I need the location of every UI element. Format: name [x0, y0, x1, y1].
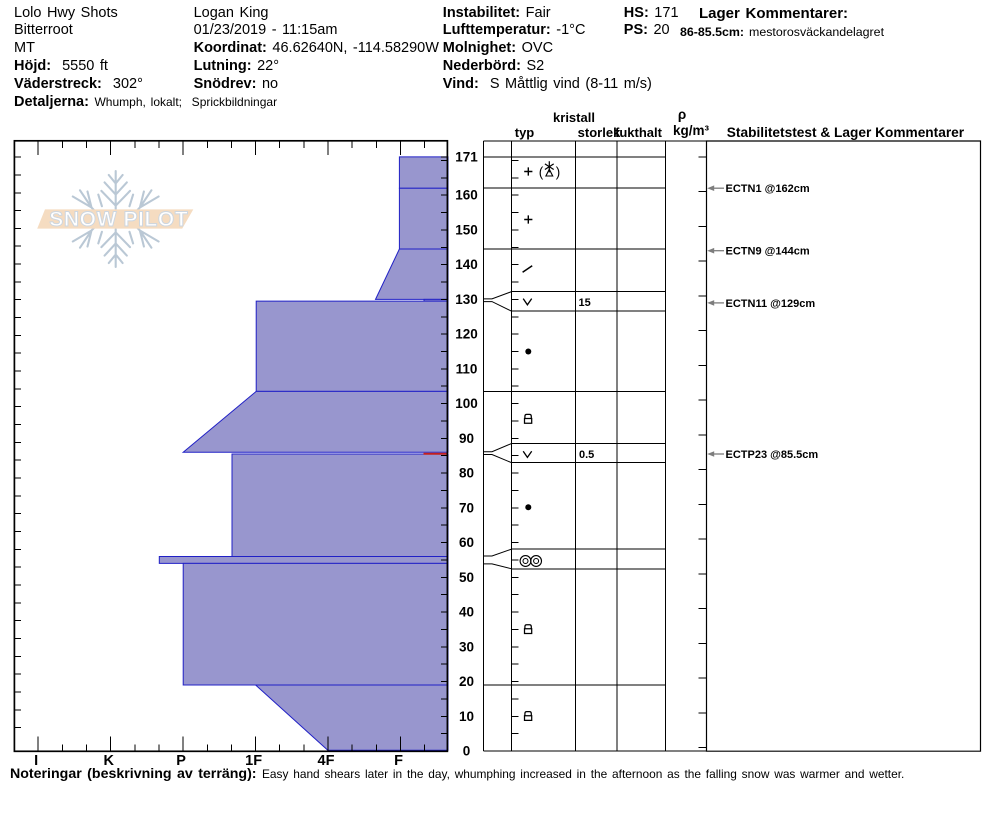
- svg-text:120: 120: [455, 327, 478, 342]
- svg-text:150: 150: [455, 222, 478, 237]
- svg-text:kristall: kristall: [553, 110, 595, 125]
- svg-text:80: 80: [459, 466, 474, 481]
- svg-text:140: 140: [455, 257, 478, 272]
- svg-text:SNOW PILOT: SNOW PILOT: [49, 208, 188, 231]
- svg-text:160: 160: [455, 188, 478, 203]
- svg-text:fukthalt: fukthalt: [615, 125, 663, 140]
- svg-text:ECTN11 @129cm: ECTN11 @129cm: [726, 298, 816, 310]
- svg-text:130: 130: [455, 292, 478, 307]
- svg-text:10: 10: [459, 709, 474, 724]
- svg-text:171: 171: [455, 149, 478, 164]
- svg-text:70: 70: [459, 500, 474, 515]
- svg-text:0.5: 0.5: [579, 449, 594, 461]
- svg-text:ECTN9 @144cm: ECTN9 @144cm: [726, 246, 810, 258]
- svg-text:): ): [556, 165, 561, 180]
- svg-text:kg/m³: kg/m³: [673, 123, 710, 138]
- svg-text:30: 30: [459, 639, 474, 654]
- svg-text:110: 110: [456, 361, 478, 376]
- svg-text:0: 0: [463, 744, 471, 759]
- svg-text:(: (: [539, 165, 544, 180]
- svg-text:ECTP23 @85.5cm: ECTP23 @85.5cm: [726, 449, 819, 461]
- svg-text:40: 40: [459, 605, 474, 620]
- svg-text:60: 60: [459, 535, 474, 550]
- svg-text:typ: typ: [515, 125, 535, 140]
- svg-text:ρ: ρ: [678, 107, 686, 122]
- svg-text:20: 20: [459, 674, 474, 689]
- svg-text:Stabilitetstest & Lager Kommen: Stabilitetstest & Lager Kommentarer: [727, 125, 965, 140]
- svg-text:100: 100: [455, 396, 478, 411]
- svg-text:15: 15: [579, 297, 591, 309]
- svg-text:90: 90: [459, 431, 474, 446]
- svg-text:ECTN1 @162cm: ECTN1 @162cm: [726, 183, 810, 195]
- svg-text:50: 50: [459, 570, 474, 585]
